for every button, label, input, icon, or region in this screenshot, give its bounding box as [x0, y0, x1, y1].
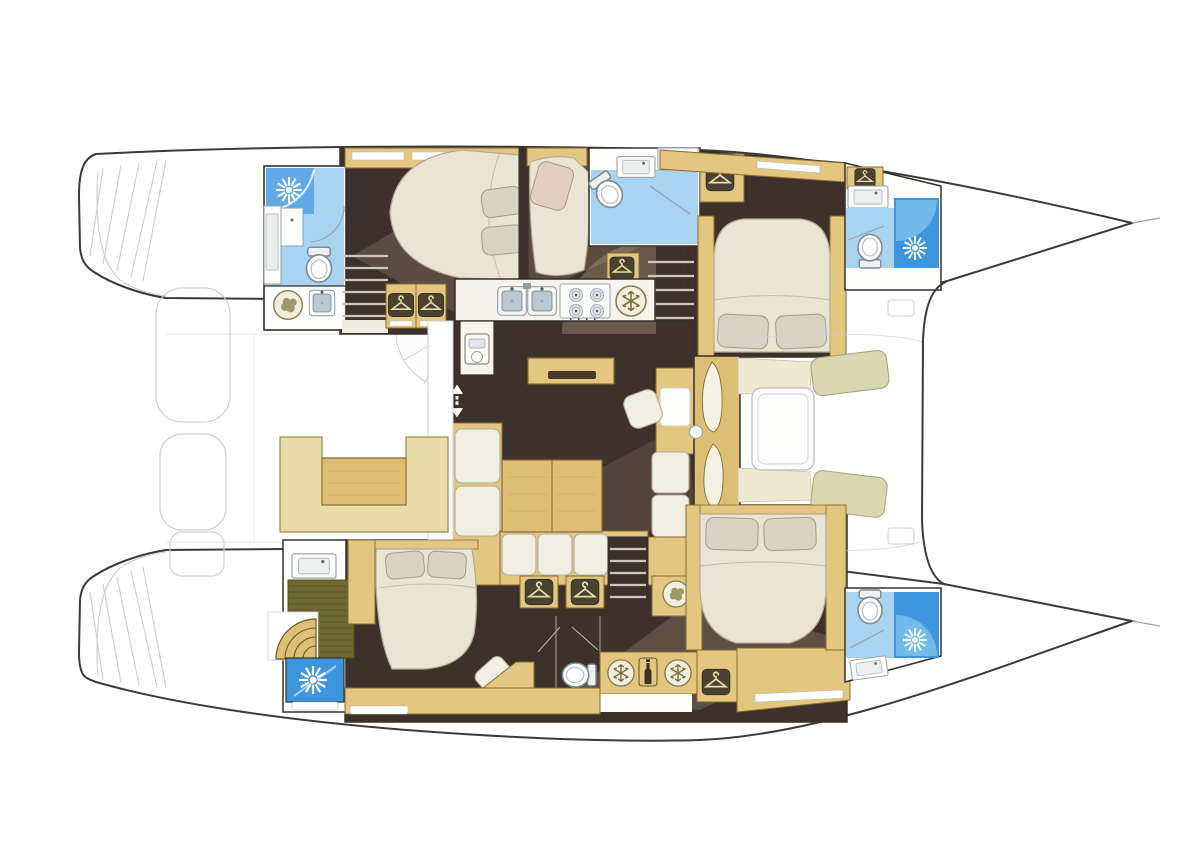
stairs-landing: [342, 320, 388, 333]
cabin-partition-wall: [519, 148, 528, 282]
stove-burner-icon: [591, 305, 604, 318]
catamaran-floorplan-canvas: [0, 0, 1200, 848]
hanger-icon: [610, 257, 634, 279]
owner-bed-side-cabinet: [348, 540, 375, 624]
sofa-cushion: [502, 534, 536, 575]
toilet-icon: [858, 590, 882, 624]
toilet-icon: [562, 663, 596, 687]
cabinet-window-slot: [292, 702, 338, 710]
galley-appliance-icon: [465, 334, 489, 364]
bed-pillow: [427, 551, 467, 580]
galley-sink-icon: [528, 287, 557, 316]
hull-floor-patch: [600, 694, 692, 712]
bed-pillow: [775, 314, 827, 350]
sofa-cushion: [455, 486, 500, 536]
bed-side-cabinet: [830, 216, 846, 358]
hanger-icon: [702, 669, 730, 694]
fridge-icon: [608, 660, 634, 686]
stove-burner-icon: [570, 289, 583, 302]
owner-bed-headboard: [375, 540, 478, 549]
toilet-icon: [858, 234, 882, 268]
bed-pillow: [763, 517, 816, 551]
tender-platform-outline: [160, 434, 226, 530]
bed-pillow: [481, 224, 525, 256]
sofa-cushion: [652, 452, 689, 493]
sofa-cushion: [455, 429, 500, 483]
bed-pillow: [480, 185, 524, 218]
sideboard-handle: [548, 371, 596, 379]
bed-headboard: [700, 505, 826, 514]
toilet-icon: [307, 247, 332, 282]
hanger-icon: [418, 293, 443, 316]
forward-cockpit-table: [752, 388, 814, 470]
forward-cockpit-bench: [738, 468, 812, 502]
laundry-sink-icon: [309, 290, 335, 316]
bow-fitting-line: [1132, 218, 1160, 223]
fridge-icon: [616, 286, 646, 316]
freezer-icon: [665, 660, 691, 686]
vanity-sink-icon: [848, 186, 888, 208]
hanger-icon: [855, 169, 875, 188]
floorplan-svg: [0, 0, 1200, 848]
galley-faucet: [523, 283, 531, 289]
galley-sink-icon: [498, 287, 527, 316]
sofa-cushion: [652, 495, 689, 537]
wardrobe-slot: [390, 321, 412, 326]
vanity-sink-icon: [617, 157, 655, 178]
tender-platform-outline: [156, 288, 230, 422]
coachroof-windshield: [922, 282, 946, 585]
bathroom-cabinet: [281, 208, 303, 246]
bed-pillow: [705, 517, 758, 551]
bed-pillow: [717, 314, 769, 350]
nav-station-desk: [660, 388, 690, 426]
deck-locker-outline: [888, 528, 914, 544]
stove-burner-icon: [570, 305, 583, 318]
washing-machine-icon: [663, 581, 689, 607]
washing-machine-icon: [274, 291, 303, 320]
hanger-icon: [571, 579, 599, 604]
cockpit-table: [322, 458, 406, 505]
port-aft-vanity-basin: [266, 214, 278, 270]
bed-pillow: [385, 550, 425, 579]
bow-fitting-line: [1132, 621, 1160, 626]
appliance-detail: [469, 339, 485, 348]
stove-burner-icon: [591, 289, 604, 302]
door-handle: [690, 426, 703, 439]
vanity-sink-icon: [292, 554, 336, 578]
hanger-icon: [388, 293, 413, 316]
cabinet-window-slot: [352, 152, 404, 160]
sofa-cushion: [574, 534, 608, 575]
cabinet-knob: [291, 219, 294, 222]
deck-locker-outline: [888, 300, 914, 316]
bed-side-cabinet: [698, 216, 714, 358]
starboard-companionway: [608, 537, 648, 603]
bed-side-cabinet: [826, 505, 846, 650]
sofa-cushion: [538, 534, 572, 575]
cabinet-window-slot: [350, 706, 408, 714]
hanger-icon: [525, 579, 553, 604]
